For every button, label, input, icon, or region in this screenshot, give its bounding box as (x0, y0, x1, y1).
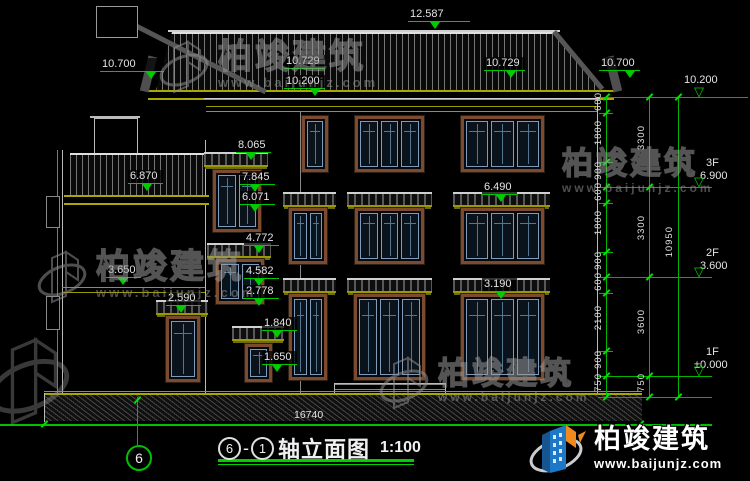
window-pane (517, 213, 539, 259)
window-pane (310, 213, 323, 259)
title-underline-thin (218, 464, 414, 465)
f3-window-narrow (302, 116, 328, 172)
elevation-triangle-icon (496, 292, 506, 304)
elevation-mark-f1-canopy-main: 3.190 (482, 278, 517, 304)
dim-segment: 900 (593, 251, 604, 270)
title-text: 轴立面图 (278, 432, 370, 464)
main-roof-tile-hatch (156, 32, 606, 90)
level-triangle-icon: ▽ (694, 86, 704, 98)
level-value-2f: 3.600 (700, 260, 728, 272)
elevation-mark-f2-canopy: 4.772 (244, 232, 279, 258)
watermark-brand: 柏竣建筑 (562, 148, 714, 181)
dim-total-height: 10950 (664, 226, 675, 257)
annex-door (166, 316, 200, 382)
dim-segment: 1800 (593, 120, 604, 145)
dim-segment: 1800 (593, 210, 604, 235)
level-line-top (598, 97, 748, 98)
brand-logo-url: www.baijunjz.com (594, 456, 722, 471)
door-pane (359, 299, 377, 375)
dimension-chain-line-2 (649, 97, 650, 397)
elevation-mark-f3-canopy: 8.065 (236, 139, 271, 165)
brand-logo: 柏竣建筑 www.baijunjz.com (528, 419, 722, 477)
elevation-mark-porch-canopy: 1.840 (262, 317, 297, 343)
f2-canopy-left (283, 192, 336, 207)
drawing-title: 6 - 1 轴立面图 1:100 (218, 432, 421, 464)
elevation-triangle-icon (254, 299, 264, 311)
window-pane (381, 121, 399, 167)
elevation-mark-eave-left: 10.700 (100, 58, 164, 84)
elevation-triangle-icon (272, 331, 282, 343)
elevation-mark-wall-top-left: 10.200 (284, 75, 325, 101)
elevation-triangle-icon (310, 89, 320, 101)
section-corbel-lower (46, 296, 60, 330)
ground-line-upper (44, 391, 642, 392)
elevation-triangle-icon (254, 246, 264, 258)
elevation-mark-ridge: 12.587 (408, 8, 470, 34)
window-pane (360, 121, 378, 167)
elevation-triangle-icon (118, 278, 128, 290)
elevation-mark-f2-sill: 2.778 (244, 285, 279, 311)
dim-floor: 3300 (636, 125, 647, 150)
level-triangle-icon: ▽ (694, 365, 704, 377)
level-floor-1f: 1F (706, 346, 719, 358)
title-dash: - (243, 438, 249, 459)
dim-floor: 750 (636, 373, 647, 392)
title-scale: 1:100 (380, 439, 421, 457)
elevation-triangle-icon (246, 153, 256, 165)
window-pane (517, 299, 539, 375)
elevation-mark-eave-right: 10.700 (599, 57, 640, 83)
elevation-triangle-icon (250, 205, 260, 217)
window-pane (401, 213, 419, 259)
f2-window-center (355, 208, 424, 264)
dim-segment: 600 (593, 182, 604, 201)
elevation-triangle-icon (176, 306, 186, 318)
dim-segment: 900 (593, 161, 604, 180)
window-pane (517, 121, 539, 167)
level-floor-3f: 3F (706, 157, 719, 169)
foundation-hatch (44, 395, 642, 421)
window-pane (360, 213, 378, 259)
total-width-dimension: 16740 (294, 409, 323, 421)
axis-bubble: 6 (126, 445, 152, 471)
door-pane (171, 321, 195, 377)
dim-segment: 900 (593, 350, 604, 369)
annex-left-edge (62, 150, 63, 393)
level-triangle-icon: ▽ (694, 266, 704, 278)
elevation-triangle-icon (146, 72, 156, 84)
elevation-triangle-icon (142, 184, 152, 196)
cad-elevation-drawing: 16740 600 1800 900 600 1800 900 600 2100… (0, 0, 750, 481)
f2-window-left (289, 208, 327, 264)
elevation-mark-f3-sill: 6.071 (240, 191, 275, 217)
window-pane (401, 121, 419, 167)
f3-window-center (355, 116, 424, 172)
roof-bulkhead-outline (96, 6, 138, 38)
window-pane (221, 264, 239, 299)
level-floor-2f: 2F (706, 247, 719, 259)
elevation-mark-eave-left-upper: 10.729 (284, 55, 325, 69)
f2-canopy-center (347, 192, 432, 207)
window-pane (307, 121, 323, 167)
dimension-chain-line-3 (678, 97, 679, 397)
elevation-triangle-icon (506, 71, 516, 83)
elevation-mark-eave-right-upper: 10.729 (484, 57, 525, 83)
brand-logo-icon (528, 419, 588, 477)
door-pane (402, 299, 420, 375)
f2-window-right (461, 208, 544, 264)
f1-canopy-center (347, 278, 432, 293)
wall-top-line (204, 98, 600, 99)
dim-segment: 2100 (593, 305, 604, 330)
facade-top-band (206, 106, 598, 112)
foundation-left-edge (44, 393, 45, 422)
dim-segment: 600 (593, 272, 604, 291)
level-value-3f: 6.900 (700, 170, 728, 182)
stair-bulkhead (94, 118, 138, 154)
f1-canopy-left (283, 278, 336, 293)
tower-left-edge (205, 140, 206, 393)
window-pane (294, 213, 307, 259)
elevation-mark-annex-band: 3.650 (106, 264, 141, 290)
window-pane (310, 299, 323, 375)
annex-roof-eave-band (64, 195, 209, 205)
elevation-mark-porch-head: 1.650 (262, 351, 297, 377)
elevation-mark-annex-roof: 6.870 (128, 170, 163, 196)
section-cut-line (57, 150, 58, 393)
axis-circle-start: 6 (218, 437, 241, 460)
f3-window-right (461, 116, 544, 172)
f1-window-right (461, 294, 544, 380)
window-pane (381, 213, 399, 259)
window-pane (466, 213, 488, 259)
window-pane (491, 213, 513, 259)
window-pane (491, 121, 513, 167)
elevation-mark-annex-door-canopy: 2.590 (166, 292, 201, 318)
level-line-base (598, 397, 712, 398)
elevation-triangle-icon (496, 195, 506, 207)
brand-logo-text: 柏竣建筑 (594, 426, 722, 453)
roof-ridge-line (168, 30, 560, 32)
elevation-triangle-icon (625, 71, 635, 83)
elevation-triangle-icon (272, 365, 282, 377)
section-corbel-upper (46, 196, 60, 228)
dim-segment: 750 (593, 373, 604, 392)
dim-segment: 600 (593, 92, 604, 111)
door-pane (380, 299, 398, 375)
window-pane (466, 299, 488, 375)
dim-floor: 3300 (636, 215, 647, 240)
axis-circle-end: 1 (251, 437, 274, 460)
elevation-triangle-icon (430, 22, 440, 34)
f1-door-center (354, 294, 425, 380)
window-pane (218, 175, 236, 227)
elevation-mark-f3-canopy-main: 6.490 (482, 181, 517, 207)
window-pane (466, 121, 488, 167)
level-triangle-icon: ▽ (694, 176, 704, 188)
window-pane (491, 299, 513, 375)
axis-extension-line (137, 397, 138, 445)
dim-floor: 3600 (636, 309, 647, 334)
